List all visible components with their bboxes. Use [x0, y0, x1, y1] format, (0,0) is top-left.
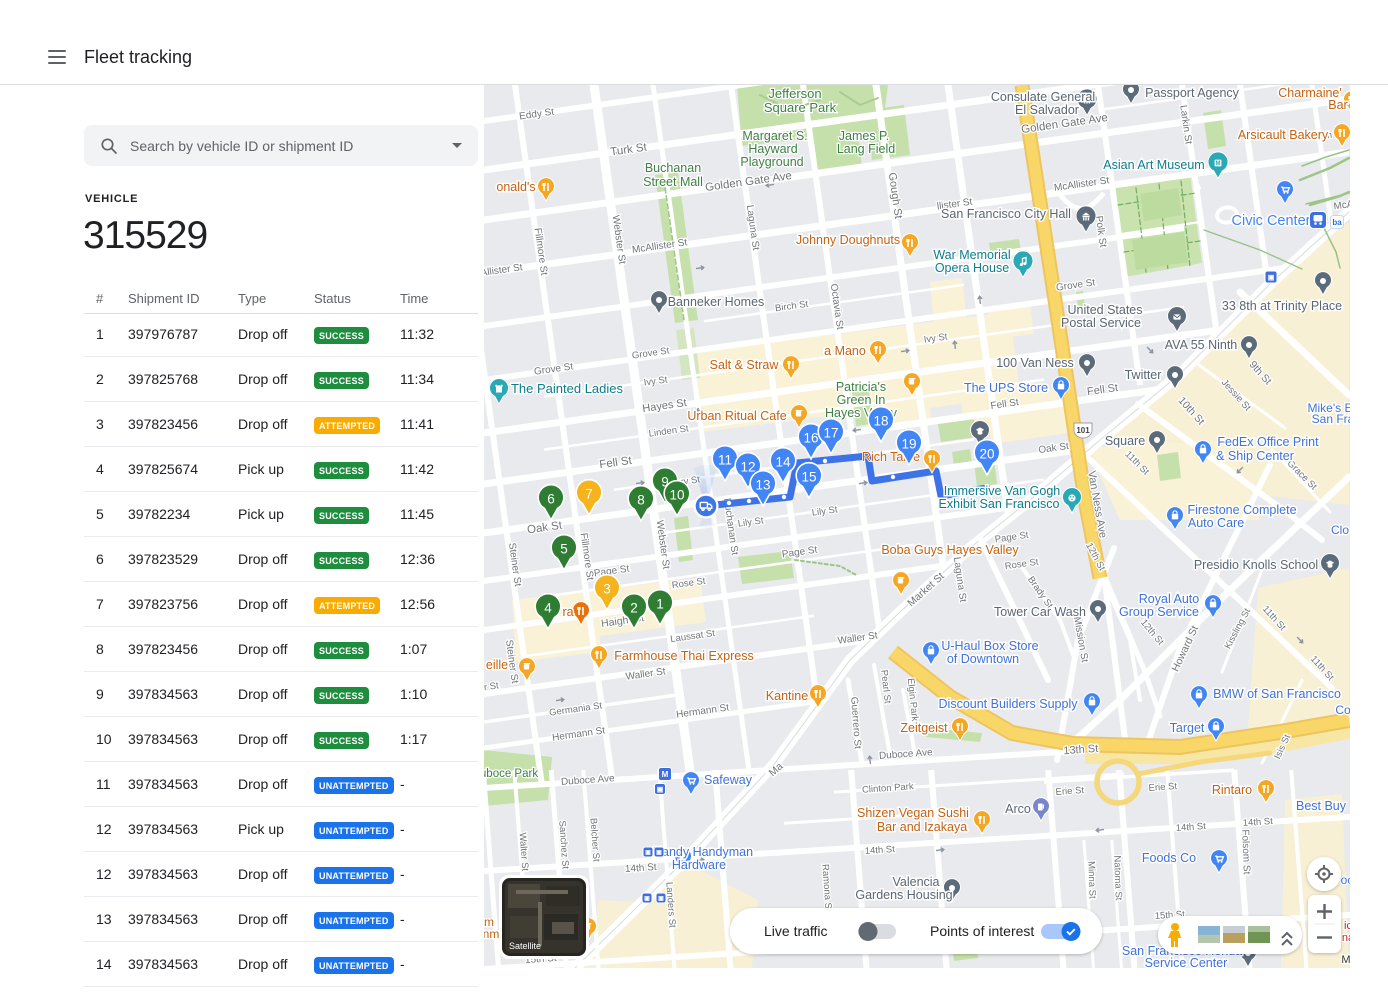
svg-text:5: 5	[560, 542, 568, 557]
svg-text:14th St: 14th St	[1175, 821, 1206, 834]
svg-text:oc: oc	[1341, 873, 1350, 887]
svg-text:19: 19	[901, 437, 916, 452]
svg-text:McAl: McAl	[1333, 199, 1350, 213]
svg-text:15: 15	[801, 470, 816, 485]
svg-text:eille: eille	[486, 658, 508, 672]
svg-text:14th St: 14th St	[1242, 816, 1273, 829]
svg-text:▣: ▣	[657, 787, 664, 794]
svg-text:▣: ▣	[645, 850, 651, 856]
svg-text:Best Buy: Best Buy	[1296, 799, 1347, 813]
svg-text:Safeway: Safeway	[704, 773, 753, 787]
svg-text:uboce Park: uboce Park	[484, 768, 538, 780]
svg-text:33 8th at Trinity Place: 33 8th at Trinity Place	[1222, 299, 1342, 313]
svg-text:nm: nm	[484, 927, 499, 941]
svg-text:16: 16	[803, 431, 818, 446]
svg-text:Hardware: Hardware	[672, 858, 726, 872]
svg-text:U-Haul Box Store: U-Haul Box Store	[941, 639, 1038, 653]
svg-text:Square: Square	[1105, 434, 1145, 448]
svg-text:Hayward: Hayward	[748, 142, 797, 156]
svg-text:The Painted Ladies: The Painted Ladies	[511, 381, 624, 396]
svg-text:17: 17	[823, 426, 838, 441]
svg-text:Group Service: Group Service	[1119, 605, 1199, 619]
svg-text:14: 14	[775, 455, 791, 470]
svg-text:Playground: Playground	[740, 155, 803, 169]
svg-text:Arsicault Bakery: Arsicault Bakery	[1238, 128, 1329, 142]
svg-text:Satellite: Satellite	[509, 941, 541, 951]
svg-text:James P.: James P.	[839, 129, 890, 143]
svg-text:The UPS Store: The UPS Store	[964, 381, 1048, 395]
svg-text:Patricia's: Patricia's	[836, 380, 886, 394]
svg-text:United States: United States	[1067, 303, 1142, 317]
svg-text:Civic Center: Civic Center	[1232, 213, 1311, 229]
svg-text:Postal Service: Postal Service	[1061, 316, 1141, 330]
svg-text:18: 18	[873, 414, 888, 429]
svg-text:14th St: 14th St	[864, 844, 895, 857]
svg-text:Discount Builders Supply: Discount Builders Supply	[939, 697, 1079, 711]
svg-text:Passport Agency: Passport Agency	[1145, 86, 1240, 100]
svg-text:M: M	[1216, 161, 1221, 167]
svg-text:Asian Art Museum: Asian Art Museum	[1103, 158, 1204, 172]
svg-text:Valencia: Valencia	[892, 875, 939, 889]
svg-text:Firestone Complete: Firestone Complete	[1187, 503, 1296, 517]
svg-text:Rintaro: Rintaro	[1212, 783, 1252, 797]
svg-text:Exhibit San Francisco: Exhibit San Francisco	[939, 497, 1060, 511]
svg-text:▣: ▣	[1268, 275, 1275, 282]
svg-text:Jefferson: Jefferson	[768, 86, 821, 101]
svg-text:13: 13	[755, 478, 770, 493]
svg-text:FedEx Office Print: FedEx Office Print	[1217, 435, 1319, 449]
svg-text:Points of interest: Points of interest	[930, 923, 1034, 939]
svg-text:ba: ba	[1332, 218, 1342, 227]
svg-text:1: 1	[656, 597, 664, 612]
svg-text:7: 7	[585, 487, 593, 502]
svg-text:Arco: Arco	[1005, 802, 1031, 816]
svg-text:Natoma St: Natoma St	[1111, 855, 1124, 901]
svg-text:100 Van Ness: 100 Van Ness	[996, 356, 1074, 370]
svg-text:AVA 55 Ninth: AVA 55 Ninth	[1165, 338, 1238, 352]
svg-text:War Memorial: War Memorial	[933, 248, 1010, 262]
svg-text:Foods Co: Foods Co	[1142, 851, 1196, 865]
svg-text:6: 6	[547, 492, 555, 507]
svg-text:4: 4	[544, 601, 552, 616]
svg-text:Co: Co	[1335, 703, 1350, 717]
svg-text:12: 12	[740, 460, 755, 475]
svg-text:Margaret S.: Margaret S.	[742, 129, 807, 143]
svg-text:Lang Field: Lang Field	[837, 142, 895, 156]
svg-text:Handy Handyman: Handy Handyman	[653, 845, 753, 859]
svg-text:Twitter: Twitter	[1125, 368, 1162, 382]
svg-text:BMW of San Francisco: BMW of San Francisco	[1213, 687, 1341, 701]
svg-text:8: 8	[637, 493, 645, 508]
svg-text:& Ship Center: & Ship Center	[1216, 449, 1294, 463]
svg-text:Folsom St: Folsom St	[1239, 829, 1252, 875]
svg-text:El Salvador: El Salvador	[1015, 103, 1079, 117]
svg-text:2: 2	[630, 601, 638, 616]
svg-text:11: 11	[718, 453, 732, 468]
svg-text:Street Mall: Street Mall	[643, 175, 703, 189]
svg-text:M: M	[1341, 954, 1350, 966]
svg-text:Live traffic: Live traffic	[764, 923, 828, 939]
svg-text:Erie St: Erie St	[1148, 781, 1178, 794]
svg-text:Consulate General: Consulate General	[991, 90, 1095, 104]
svg-text:Target: Target	[1170, 721, 1205, 735]
svg-text:San Fra: San Fra	[1312, 412, 1350, 426]
svg-text:Presidio Knolls School: Presidio Knolls School	[1194, 558, 1318, 572]
svg-text:San Francisco City Hall: San Francisco City Hall	[941, 207, 1071, 221]
svg-text:Shizen Vegan Sushi: Shizen Vegan Sushi	[857, 806, 969, 820]
svg-text:Urban Ritual Cafe: Urban Ritual Cafe	[687, 409, 786, 423]
svg-text:Minna St: Minna St	[1085, 861, 1097, 899]
svg-text:Square Park: Square Park	[764, 100, 837, 115]
svg-text:Service Center: Service Center	[1145, 956, 1228, 968]
svg-text:na: na	[1342, 932, 1350, 944]
svg-text:Erie St: Erie St	[1055, 785, 1085, 798]
svg-text:Johnny Doughnuts: Johnny Doughnuts	[796, 233, 900, 247]
svg-text:Bar and Izakaya: Bar and Izakaya	[877, 820, 967, 834]
svg-text:Kantine: Kantine	[766, 689, 808, 703]
svg-text:Salt & Straw: Salt & Straw	[710, 358, 780, 372]
svg-text:Buchanan: Buchanan	[645, 161, 701, 175]
svg-text:▣: ▣	[658, 896, 664, 902]
svg-text:Clo: Clo	[1331, 523, 1349, 537]
svg-text:Tower Car Wash: Tower Car Wash	[994, 605, 1086, 619]
svg-text:▣: ▣	[656, 850, 662, 856]
svg-text:onald's: onald's	[496, 180, 535, 194]
svg-text:Banneker Homes: Banneker Homes	[668, 295, 765, 309]
svg-text:Gardens Housing: Gardens Housing	[855, 888, 952, 902]
svg-text:3: 3	[603, 582, 611, 597]
svg-text:Zeitgeist: Zeitgeist	[900, 721, 948, 735]
svg-text:14th St: 14th St	[625, 862, 658, 875]
svg-text:Immersive Van Gogh: Immersive Van Gogh	[944, 484, 1061, 498]
svg-text:Auto Care: Auto Care	[1188, 516, 1244, 530]
svg-text:Farmhouse Thai Express: Farmhouse Thai Express	[614, 649, 753, 663]
svg-text:20: 20	[979, 447, 994, 462]
svg-text:a Mano: a Mano	[824, 344, 866, 358]
svg-text:ic: ic	[1344, 920, 1350, 932]
svg-text:Opera House: Opera House	[935, 261, 1009, 275]
svg-text:▣: ▣	[644, 896, 650, 902]
svg-text:13th St: 13th St	[1063, 743, 1099, 757]
svg-text:of Downtown: of Downtown	[947, 652, 1019, 666]
svg-text:Boba Guys Hayes Valley: Boba Guys Hayes Valley	[881, 543, 1019, 557]
svg-text:Green In: Green In	[837, 393, 886, 407]
svg-text:ra: ra	[562, 605, 573, 619]
svg-text:M: M	[662, 770, 669, 779]
svg-text:101: 101	[1076, 426, 1090, 435]
svg-text:10: 10	[669, 488, 684, 503]
svg-text:Royal Auto: Royal Auto	[1139, 592, 1200, 606]
svg-text:Bar: Bar	[1328, 98, 1347, 112]
